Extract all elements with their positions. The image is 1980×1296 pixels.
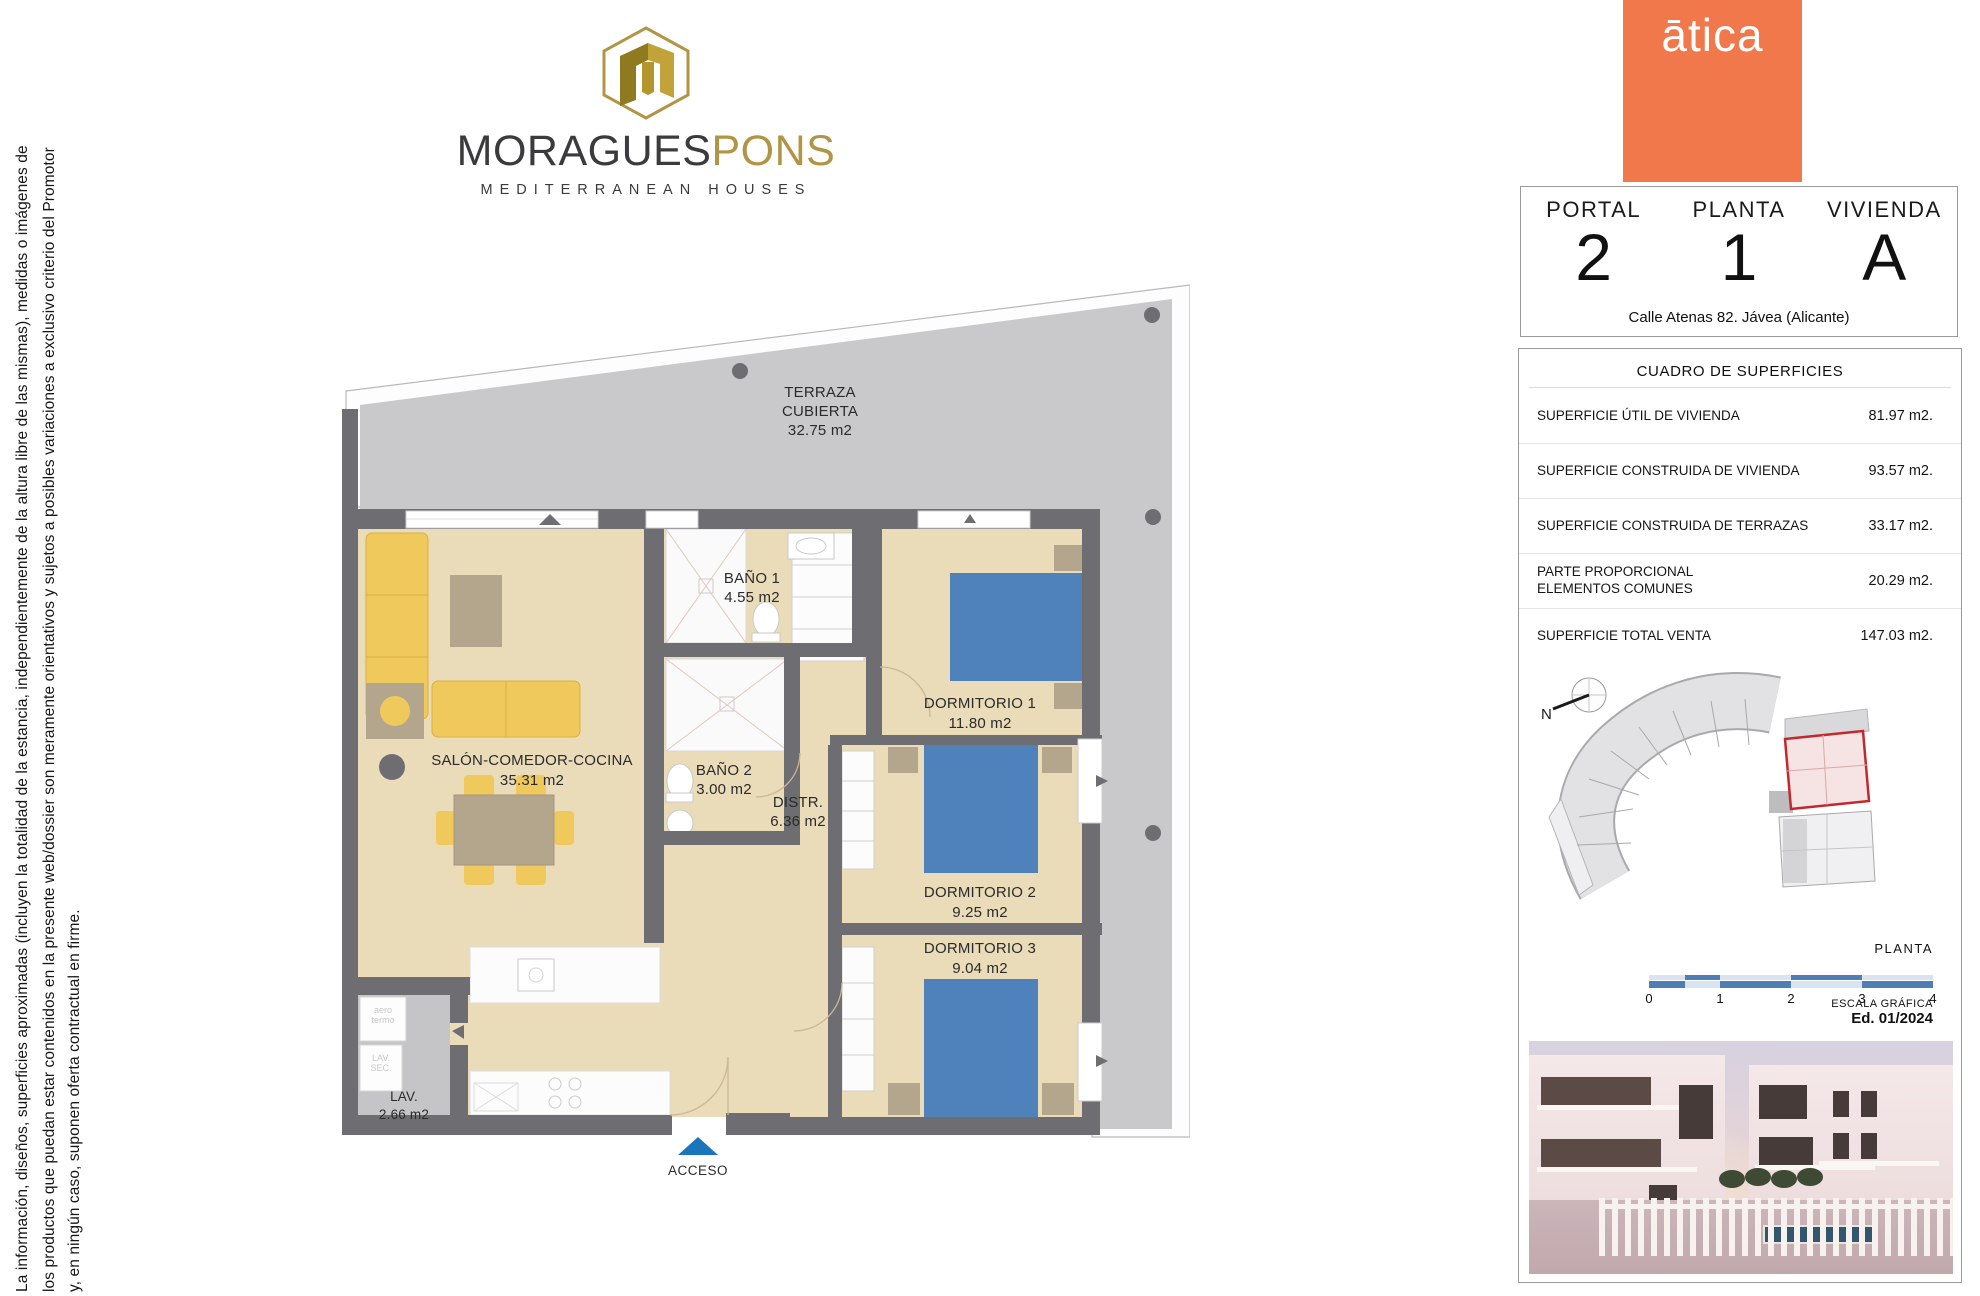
room-area-distr: 6.36 m2	[770, 813, 826, 830]
table-row: PARTE PROPORCIONALELEMENTOS COMUNES 20.2…	[1519, 554, 1961, 609]
room-label-bano2: BAÑO 2	[696, 762, 752, 779]
divider	[1529, 387, 1951, 388]
table-row: SUPERFICIE CONSTRUIDA DE TERRAZAS 33.17 …	[1519, 499, 1961, 554]
room-label-salon: SALÓN-COMEDOR-COCINA	[431, 752, 633, 769]
table-row: SUPERFICIE ÚTIL DE VIVIENDA 81.97 m2.	[1519, 389, 1961, 444]
room-label-bano1: BAÑO 1	[724, 570, 780, 587]
developer-logo: ātica	[1623, 0, 1802, 182]
entrance-label: ACCESO	[668, 1163, 728, 1178]
room-label-terraza2: CUBIERTA	[782, 403, 858, 420]
terrace-column	[1145, 509, 1161, 525]
row-label: SUPERFICIE ÚTIL DE VIVIENDA	[1537, 408, 1740, 425]
room-area-bano2: 3.00 m2	[696, 781, 752, 798]
room-area-terraza: 32.75 m2	[788, 422, 852, 439]
row-value: 20.29 m2.	[1869, 573, 1934, 589]
wardrobe-dorm2	[842, 751, 874, 869]
appliance-label-sec: SEC.	[370, 1063, 391, 1073]
surface-table-title: CUADRO DE SUPERFICIES	[1519, 363, 1961, 380]
disclaimer-line-2: los productos que puedan estar contenido…	[41, 147, 59, 1292]
row-label: SUPERFICIE CONSTRUIDA DE VIVIENDA	[1537, 463, 1800, 480]
entrance-arrow-icon	[678, 1137, 718, 1155]
room-label-lav: LAV.	[390, 1089, 418, 1104]
brand-name: MORAGUESPONS	[420, 130, 872, 173]
unit-field-planta: PLANTA 1	[1666, 197, 1811, 309]
appliance-label-lav: LAV.	[372, 1053, 390, 1063]
row-value: 147.03 m2.	[1860, 628, 1933, 644]
building-render-photo	[1529, 1041, 1953, 1274]
disclaimer-line-3: y, en ningún caso, suponen oferta contra…	[66, 909, 84, 1292]
developer-logo-text: ātica	[1661, 8, 1763, 62]
room-label-dorm3: DORMITORIO 3	[924, 940, 1036, 957]
highlighted-unit	[1785, 731, 1869, 809]
room-area-dorm1: 11.80 m2	[948, 715, 1011, 732]
room-area-lav: 2.66 m2	[379, 1107, 429, 1122]
brand-logo: MORAGUESPONS MEDITERRANEAN HOUSES	[420, 26, 872, 198]
floor-plan: TERRAZA CUBIERTA 32.75 m2 SALÓN-COMEDOR-…	[340, 283, 1190, 1183]
appliance-label-aero: aero	[374, 1005, 392, 1015]
room-label-distr: DISTR.	[773, 794, 823, 811]
row-value: 93.57 m2.	[1869, 463, 1934, 479]
row-value: 33.17 m2.	[1869, 518, 1934, 534]
portal-value: 2	[1521, 223, 1666, 292]
compass-icon: N	[1541, 678, 1606, 723]
picket-fence	[1599, 1198, 1953, 1256]
unit-field-vivienda: VIVIENDA A	[1812, 197, 1957, 309]
address: Calle Atenas 82. Jávea (Alicante)	[1521, 309, 1957, 326]
site-plan: N	[1527, 667, 1957, 912]
surface-table: SUPERFICIE ÚTIL DE VIVIENDA 81.97 m2. SU…	[1519, 389, 1961, 663]
room-label-terraza: TERRAZA	[784, 384, 855, 401]
unit-field-portal: PORTAL 2	[1521, 197, 1666, 309]
terrace-column	[1144, 307, 1160, 323]
table-row: SUPERFICIE TOTAL VENTA 147.03 m2.	[1519, 609, 1961, 663]
room-area-dorm3: 9.04 m2	[952, 960, 1008, 977]
svg-text:N: N	[1541, 706, 1552, 723]
scale-caption: ESCALA GRÁFICA Ed. 01/2024	[1831, 999, 1933, 1026]
brand-tagline: MEDITERRANEAN HOUSES	[420, 182, 872, 198]
room-area-bano1: 4.55 m2	[724, 589, 780, 606]
shower-baño2	[666, 659, 788, 751]
siteplan-caption: PLANTA	[1874, 941, 1933, 956]
vivienda-value: A	[1812, 223, 1957, 292]
hexagon-logo-icon	[596, 26, 696, 120]
room-label-dorm1: DORMITORIO 1	[924, 695, 1036, 712]
row-label: SUPERFICIE CONSTRUIDA DE TERRAZAS	[1537, 518, 1808, 535]
table-row: SUPERFICIE CONSTRUIDA DE VIVIENDA 93.57 …	[1519, 444, 1961, 499]
wardrobe-dorm3	[842, 947, 874, 1091]
row-value: 81.97 m2.	[1869, 408, 1934, 424]
planta-value: 1	[1666, 223, 1811, 292]
room-area-salon: 35.31 m2	[500, 772, 564, 789]
brand-name-gold: PONS	[712, 127, 836, 175]
room-area-dorm2: 9.25 m2	[952, 904, 1008, 921]
disclaimer-line-1: La información, diseños, superficies apr…	[14, 145, 32, 1292]
terrace-column	[1145, 825, 1161, 841]
row-label: SUPERFICIE TOTAL VENTA	[1537, 628, 1711, 645]
building-right	[1749, 1065, 1953, 1215]
room-label-dorm2: DORMITORIO 2	[924, 884, 1036, 901]
terrace-column	[732, 363, 748, 379]
brand-name-black: MORAGUES	[457, 127, 712, 175]
unit-info-card: PORTAL 2 PLANTA 1 VIVIENDA A Calle Atena…	[1520, 186, 1958, 337]
detail-panel: CUADRO DE SUPERFICIES SUPERFICIE ÚTIL DE…	[1518, 348, 1962, 1283]
row-label: PARTE PROPORCIONALELEMENTOS COMUNES	[1537, 564, 1693, 598]
appliance-label-termo: termo	[371, 1015, 394, 1025]
